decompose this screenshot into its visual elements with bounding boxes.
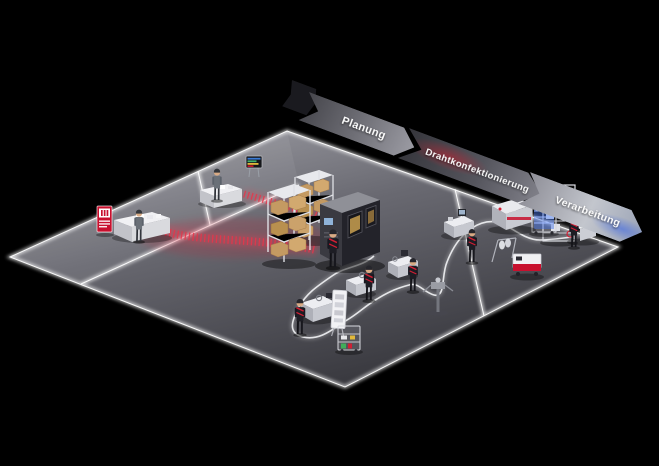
factory-scene: Planung Drahtkonfektionierung Verarbeitu…	[0, 0, 659, 466]
machine-screen	[324, 218, 333, 225]
tool-cart	[335, 326, 363, 355]
isometric-floor-illustration	[0, 0, 659, 466]
mobile-machine-cart	[510, 254, 544, 281]
